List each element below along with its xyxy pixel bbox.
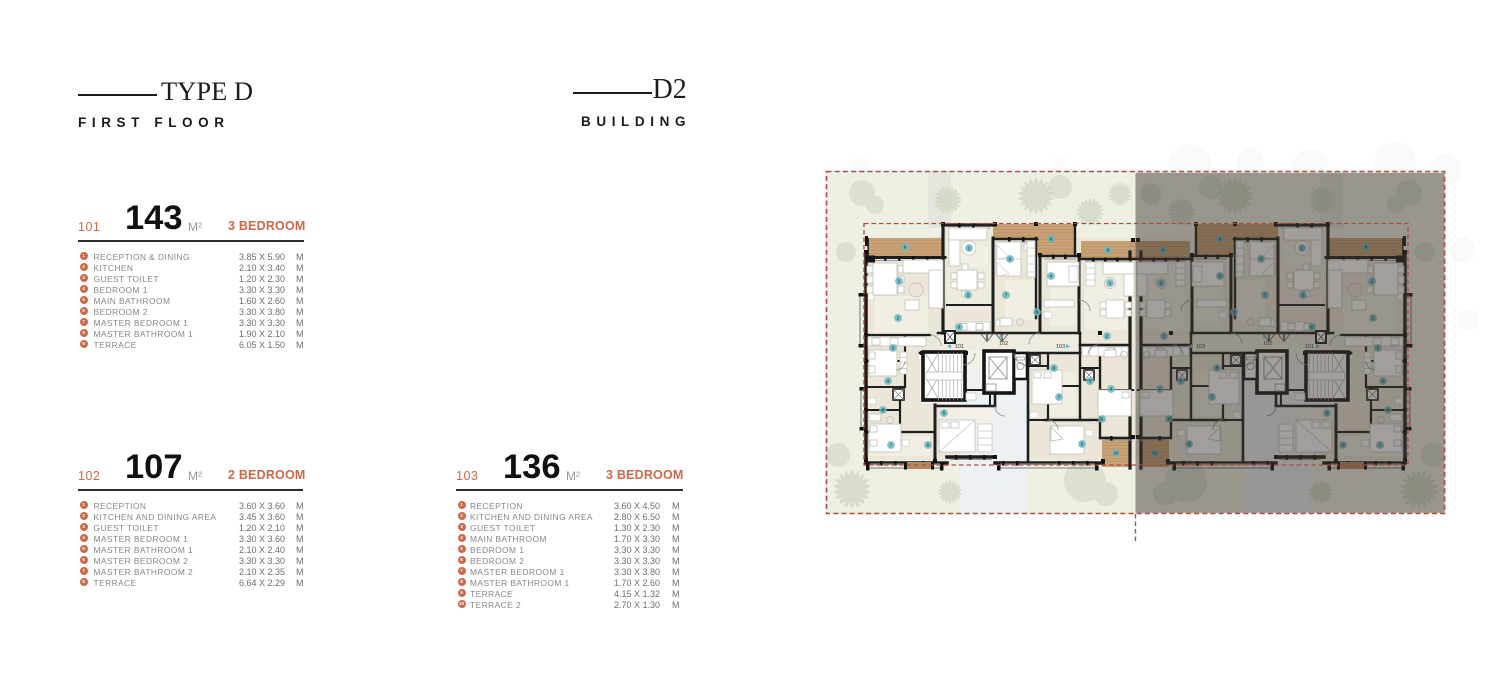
- svg-text:2: 2: [967, 293, 970, 299]
- svg-text:7: 7: [1005, 293, 1008, 299]
- svg-text:6: 6: [1101, 417, 1104, 423]
- svg-text:4: 4: [1110, 387, 1113, 393]
- svg-text:9: 9: [1107, 248, 1110, 254]
- svg-text:5: 5: [1081, 442, 1084, 448]
- svg-text:3: 3: [892, 346, 895, 352]
- svg-text:8: 8: [1053, 366, 1056, 372]
- svg-text:9: 9: [904, 245, 907, 251]
- svg-text:4: 4: [887, 379, 890, 385]
- svg-text:6: 6: [1050, 237, 1053, 243]
- svg-text:8: 8: [1036, 310, 1039, 316]
- svg-text:6: 6: [927, 443, 930, 449]
- svg-text:7: 7: [890, 443, 893, 449]
- svg-text:1: 1: [1109, 281, 1112, 287]
- svg-text:3: 3: [958, 325, 961, 331]
- svg-text:1: 1: [898, 279, 901, 285]
- svg-text:5: 5: [1009, 257, 1012, 263]
- svg-text:5: 5: [943, 411, 946, 417]
- svg-text:4: 4: [1050, 274, 1053, 280]
- svg-text:10: 10: [1113, 451, 1119, 457]
- svg-text:102: 102: [999, 341, 1008, 347]
- svg-text:3: 3: [1089, 379, 1092, 385]
- svg-text:103: 103: [1056, 344, 1065, 350]
- svg-text:101: 101: [955, 344, 964, 350]
- svg-text:7: 7: [1058, 395, 1061, 401]
- svg-text:2: 2: [1106, 334, 1109, 340]
- svg-text:8: 8: [882, 408, 885, 414]
- svg-text:2: 2: [897, 316, 900, 322]
- svg-text:1: 1: [968, 246, 971, 252]
